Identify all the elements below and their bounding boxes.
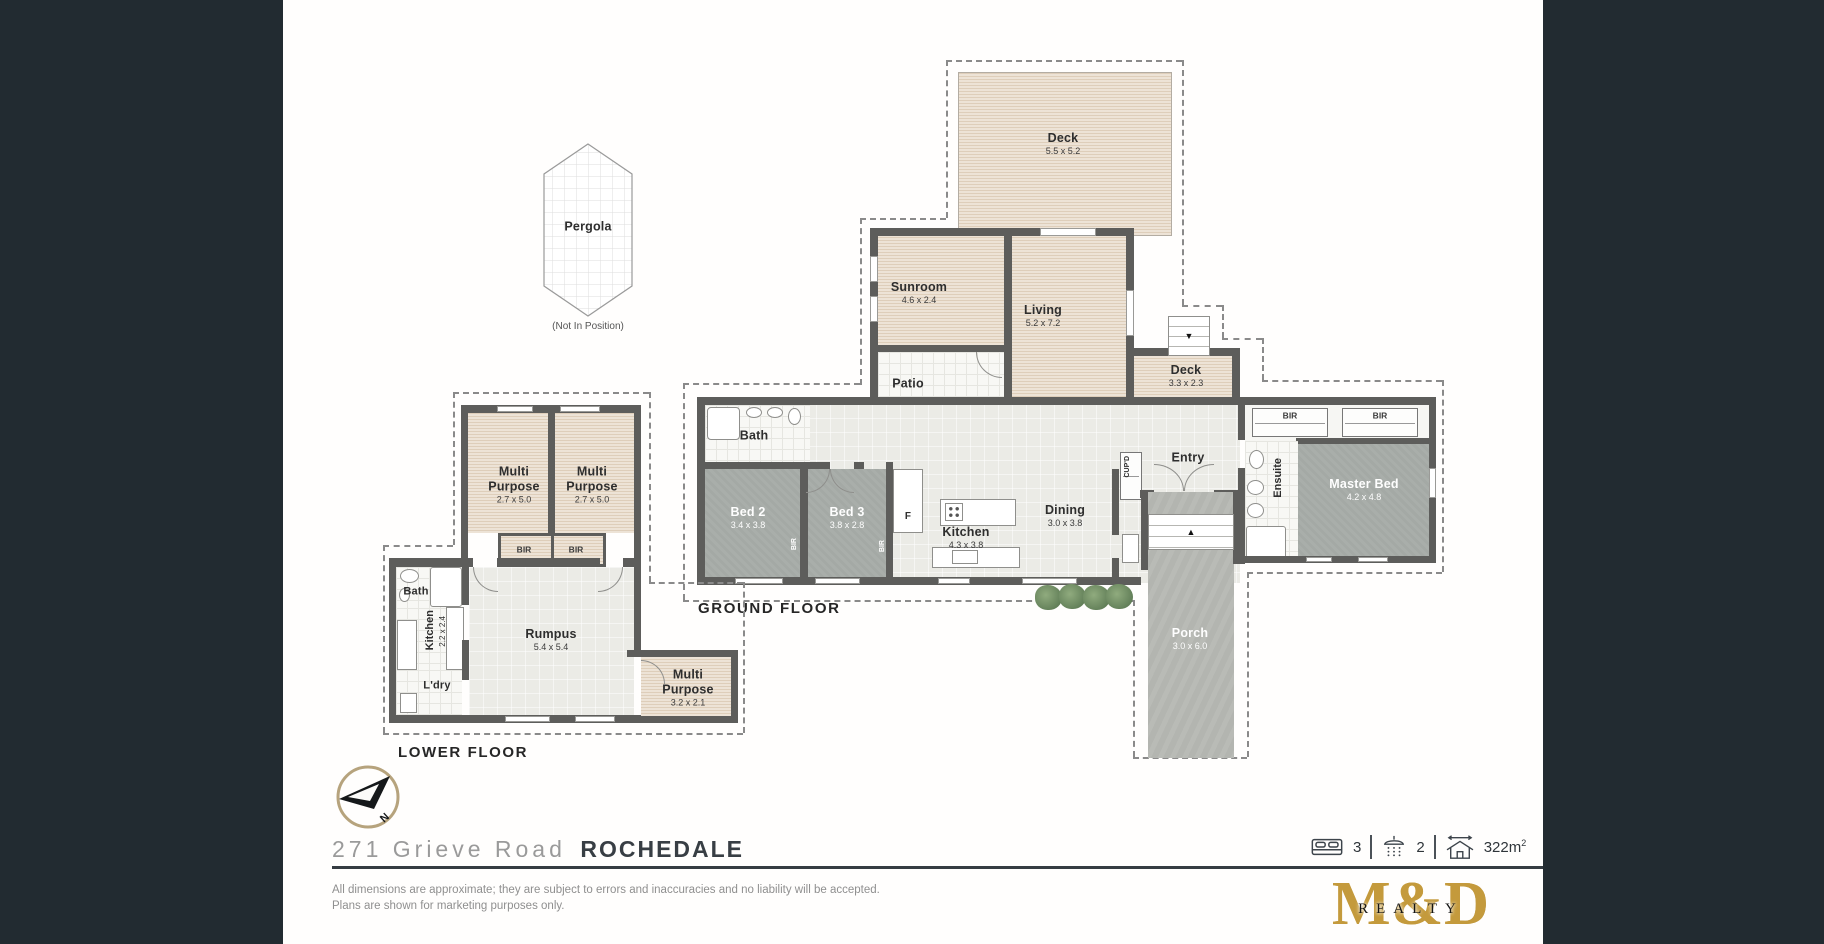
lower-floor-title: LOWER FLOOR [398,744,528,761]
room-label-entry: Entry [1172,451,1205,466]
wall [627,650,738,657]
right-band [1543,0,1824,944]
dashed-line [1442,380,1444,572]
window [575,716,615,722]
sliding-door [1040,228,1096,236]
shower-icon [1381,835,1407,859]
wall [548,413,555,535]
pergola-note: (Not In Position) [508,321,668,332]
room-label-living: Living 5.2 x 7.2 [1024,303,1062,329]
stats-divider [1370,835,1372,859]
compass-icon: N [332,764,404,834]
counter-fixture [397,620,417,670]
room-label-multi1: Multi Purpose 2.7 x 5.0 [479,465,549,506]
room-label-rumpus: Rumpus 5.4 x 5.4 [525,627,576,653]
entry-steps: ▲ [1148,514,1234,550]
dashed-line [1247,572,1249,757]
basin-fixture [746,407,762,418]
house-area-icon [1445,834,1475,860]
toilet-fixture [788,408,801,425]
stats-divider [1434,835,1436,859]
dashed-line [383,545,453,547]
agency-logo: M&D REALTY [1306,868,1516,942]
address-suburb: ROCHEDALE [580,836,744,862]
dashed-line [1262,380,1442,382]
bed-count: 3 [1353,839,1361,856]
room-label-ensuite: Ensuite [1272,458,1284,498]
dashed-line [743,582,745,733]
appliance-fixture [1122,534,1139,563]
property-address: 271 Grieve Road ROCHEDALE [332,836,744,863]
bir-label-bed2: BIR [791,538,798,550]
wall [461,405,468,560]
wall [462,640,469,680]
room-label-kitchen: Kitchen 4.3 x 3.8 [942,525,989,551]
dashed-line [383,733,743,735]
wall [497,558,600,567]
window [815,578,860,584]
wall [886,462,893,577]
dashed-line [946,60,1182,62]
dashed-line [1222,305,1224,338]
window [1126,290,1134,336]
window [1358,557,1388,562]
steps-arrow-icon: ▲ [1187,527,1196,537]
window [870,256,878,282]
toilet-fixture [1249,450,1264,469]
wall [697,397,705,584]
wall [1004,236,1012,402]
dashed-line [946,60,948,218]
wall [1141,492,1148,570]
room-label-master-bed: Master Bed 4.2 x 4.8 [1329,477,1398,503]
bir-label-left: BIR [1283,404,1298,423]
dashed-line [1247,572,1442,574]
bath-count: 2 [1416,839,1424,856]
fridge-label: F [905,511,911,523]
cupboard-label: CUP'D [1124,456,1131,478]
wall [810,462,830,469]
ground-floor-title: GROUND FLOOR [698,600,841,617]
laundry-tub-fixture [400,693,417,713]
dashed-line [453,392,455,545]
room-label-dining: Dining 3.0 x 3.8 [1045,503,1085,529]
shower-fixture [1246,526,1286,559]
room-label-multi3: Multi Purpose 3.2 x 2.1 [653,668,723,709]
wall [1238,397,1436,405]
room-label-bath-lower: Bath [403,585,428,598]
wall [634,405,641,657]
dashed-line [1262,338,1264,380]
dashed-line [683,383,860,385]
stairs-upper: ▼ [1168,316,1210,356]
wall [389,558,473,567]
stairs-arrow-icon: ▼ [1185,331,1194,341]
disclaimer-line2: Plans are shown for marketing purposes o… [332,900,564,912]
wall [1232,348,1240,404]
wall [389,558,396,723]
wall [627,716,738,723]
bir-label-right: BIR [1373,404,1388,423]
dashed-line [453,392,649,394]
wall [623,558,641,567]
room-dims-kitchen-lower: 2.2 x 2.4 [438,616,447,647]
room-label-deck-side: Deck 3.3 x 2.3 [1169,363,1204,389]
wall [854,462,864,469]
basin-fixture [1247,503,1264,518]
wall [1233,492,1240,564]
wall [1238,556,1436,563]
wall [878,345,1005,352]
window [497,406,533,412]
shower-fixture [707,407,740,440]
room-label-deck-top: Deck 5.5 x 5.2 [1046,131,1081,157]
bed-icon [1310,836,1344,858]
wall [1112,469,1119,535]
bush [1106,584,1133,609]
wall [1238,397,1245,440]
dashed-line [860,218,946,220]
window [505,716,550,722]
wall [462,567,469,605]
sink-fixture [952,550,978,564]
toilet-fixture [400,569,419,583]
room-label-patio: Patio [892,377,924,392]
wall [461,405,641,413]
dashed-line [860,218,862,385]
disclaimer-line1: All dimensions are approximate; they are… [332,884,880,896]
dashed-line [649,582,743,584]
room-label-porch: Porch 3.0 x 6.0 [1172,626,1208,652]
window [938,578,970,584]
room-label-bed3: Bed 3 3.8 x 2.8 [829,505,864,531]
cooktop-fixture [945,503,963,521]
wall [697,397,1245,405]
room-label-bath: Bath [740,429,769,444]
shower-fixture [430,567,462,607]
basin-fixture [1247,480,1264,495]
room-label-kitchen-lower: Kitchen [424,610,436,650]
dashed-line [683,383,685,600]
room-label-multi2: Multi Purpose 2.7 x 5.0 [557,465,627,506]
window [870,296,878,322]
window [560,406,600,412]
dashed-line [1222,338,1262,340]
wall [731,650,738,723]
dashed-line [383,545,385,733]
dashed-line [1182,305,1222,307]
bir-label: BIR [517,538,532,557]
dashed-line [649,392,651,582]
wall [697,462,810,469]
bush [1035,585,1062,610]
bir-label: BIR [569,538,584,557]
dashed-line [1182,60,1184,305]
bir-label-bed3: BIR [879,540,886,552]
bush [1059,584,1086,609]
left-band [0,0,283,944]
fridge-nook [893,469,923,533]
logo-realty-label: REALTY [1306,901,1516,918]
window [1429,468,1436,498]
property-stats: 3 2 322m2 [1310,832,1526,862]
window [1306,557,1332,562]
basin-fixture [767,407,783,418]
dashed-line [1133,600,1135,757]
pergola-label: Pergola [564,220,611,235]
room-label-sunroom: Sunroom 4.6 x 2.4 [891,280,947,306]
floor-area: 322m2 [1484,838,1527,856]
floorplan-page: Pergola (Not In Position) Deck 5.5 x 5.2… [0,0,1824,944]
room-label-laundry: L'dry [423,679,450,692]
room-label-bed2: Bed 2 3.4 x 3.8 [730,505,765,531]
address-street: 271 Grieve Road [332,836,566,862]
